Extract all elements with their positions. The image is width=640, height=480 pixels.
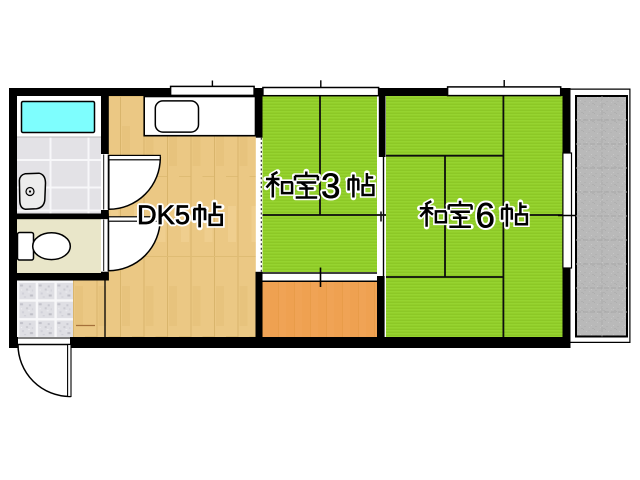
svg-text:DK5: DK5 (137, 200, 190, 230)
svg-text:3: 3 (321, 167, 340, 206)
svg-text:6: 6 (476, 196, 495, 235)
